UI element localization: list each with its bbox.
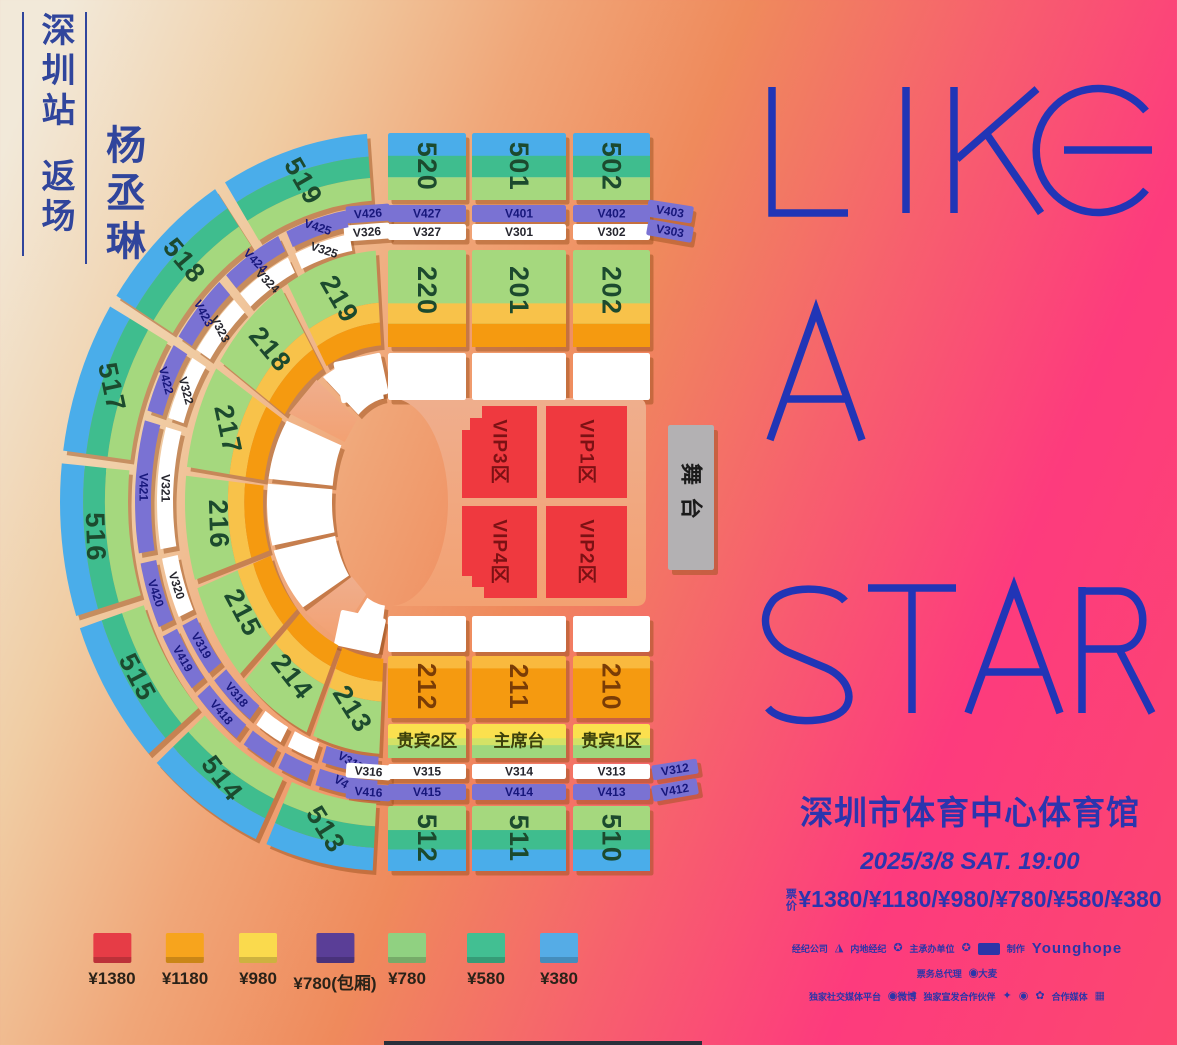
sponsor-logo-icon: ◉ [1019, 991, 1029, 1002]
legend-item-1: ¥1180 [162, 933, 208, 989]
letter-R [1082, 587, 1152, 713]
legend-item-3: ¥780(包厢) [293, 933, 376, 994]
legend-item-6: ¥380 [540, 933, 578, 989]
sponsor-role-label: 独家社交媒体平台 [809, 990, 881, 1003]
legend-swatch [540, 933, 578, 963]
sponsor-brand-name: Younghope [1032, 940, 1122, 957]
legend-swatch [467, 933, 505, 963]
legend-swatch [239, 933, 277, 963]
sponsor-role-label: 经纪公司 [792, 942, 828, 955]
sponsor-role-label: 主承办单位 [910, 942, 955, 955]
sponsor-logo-icon: ✪ [962, 943, 971, 954]
price-label: 票价 [784, 888, 795, 912]
legend-item-0: ¥1380 [88, 933, 135, 989]
legend-price-label: ¥1380 [88, 969, 135, 989]
legend-price-label: ¥580 [467, 969, 505, 989]
price-line: ¥1380/¥1180/¥980/¥780/¥580/¥380 [798, 886, 1161, 913]
legend-price-label: ¥780(包厢) [293, 969, 376, 994]
legend-item-5: ¥580 [467, 933, 505, 989]
letter-S [766, 589, 849, 720]
event-datetime: 2025/3/8 SAT. 19:00 [760, 848, 1177, 876]
sponsor-row2: 票务总代理◉大麦 [742, 966, 1172, 980]
sponsor-logo-icon: ✿ [1035, 991, 1044, 1002]
sponsor-block: 经纪公司◮内地经纪✪主承办单位✪制作Younghope票务总代理◉大麦独家社交媒… [742, 940, 1172, 1012]
price-row: 票价 ¥1380/¥1180/¥980/¥780/¥580/¥380 [768, 886, 1177, 913]
legend-item-4: ¥780 [388, 933, 426, 989]
legend-price-label: ¥980 [239, 969, 277, 989]
sponsor-role-label: 独家宣发合作伙伴 [924, 990, 996, 1003]
legend-price-label: ¥1180 [162, 969, 208, 989]
legend-swatch [388, 933, 426, 963]
sponsor-logo-wordmark: ◉微博 [888, 989, 917, 1003]
legend-price-label: ¥380 [540, 969, 578, 989]
sponsor-role-label: 内地经纪 [850, 942, 886, 955]
legend-swatch [166, 933, 204, 963]
sponsor-role-label: 票务总代理 [917, 967, 962, 980]
venue-name: 深圳市体育中心体育馆 [760, 786, 1177, 834]
sponsor-row3: 独家社交媒体平台◉微博独家宣发合作伙伴✦◉✿合作媒体▦ [742, 989, 1172, 1003]
letter-L [772, 87, 848, 213]
sponsor-row1: 经纪公司◮内地经纪✪主承办单位✪制作Younghope [742, 940, 1172, 957]
legend-swatch [316, 933, 354, 963]
sponsor-logo-wordmark: ◉大麦 [969, 966, 998, 980]
legend-item-2: ¥980 [239, 933, 277, 989]
bottom-crop-bar [384, 1041, 702, 1045]
letter-A2 [968, 587, 1060, 713]
price-legend: ¥1380¥1180¥980¥780(包厢)¥780¥580¥380 [0, 933, 700, 1003]
letter-K [954, 87, 1041, 213]
sponsor-role-label: 合作媒体 [1052, 990, 1088, 1003]
legend-swatch [93, 933, 131, 963]
sponsor-logo-icon: ▦ [1095, 991, 1105, 1002]
sponsor-logo-icon [978, 943, 1000, 955]
sponsor-role-label: 制作 [1007, 942, 1025, 955]
sponsor-logo-icon: ✪ [893, 943, 902, 954]
letter-E [1036, 88, 1152, 212]
legend-price-label: ¥780 [388, 969, 426, 989]
letter-T [868, 588, 956, 713]
letter-A [770, 310, 862, 440]
sponsor-logo-icon: ◮ [835, 943, 843, 954]
sponsor-logo-icon: ✦ [1003, 991, 1012, 1002]
